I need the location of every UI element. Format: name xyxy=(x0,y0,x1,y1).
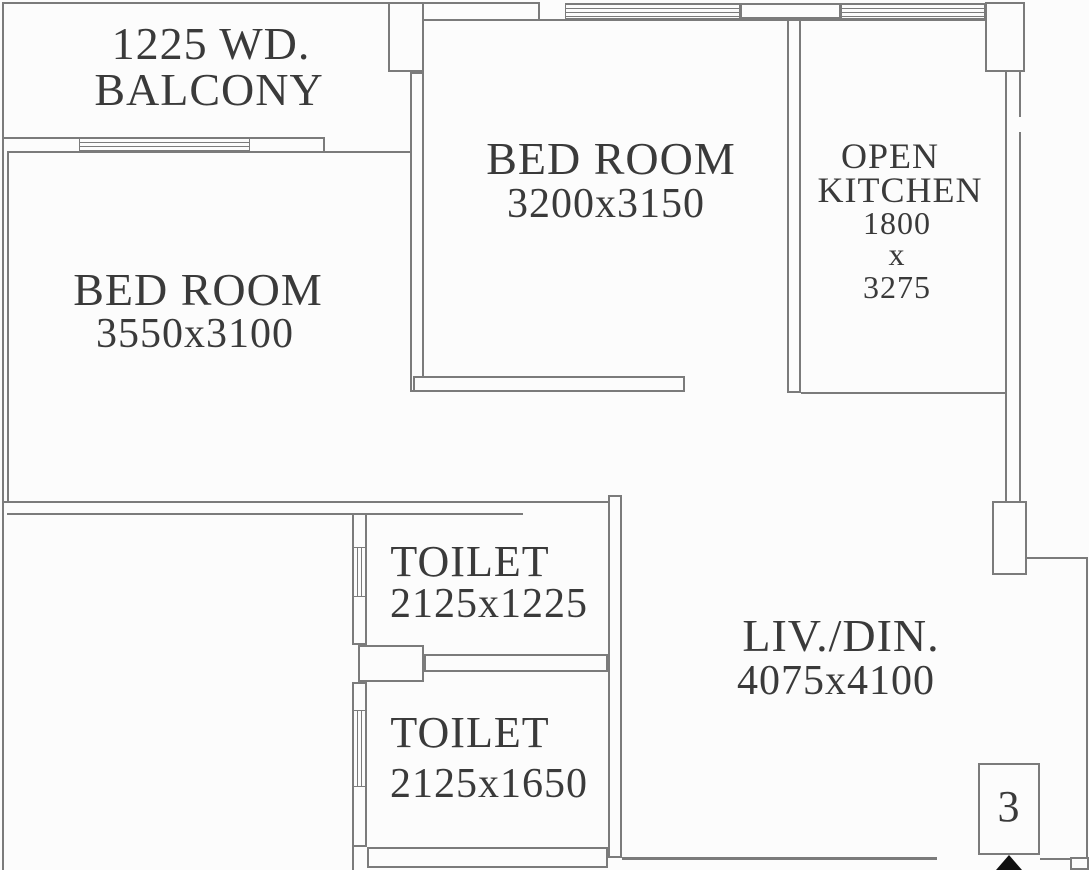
bedroom-1-name-label: BED ROOM xyxy=(73,267,323,313)
kitchen-dimension-x: x xyxy=(889,238,906,270)
unit-number-label: 3 xyxy=(998,785,1021,829)
wall-band-between-windows xyxy=(740,3,841,19)
wall-top-outer xyxy=(2,2,538,4)
wall-bed2-right xyxy=(787,19,801,393)
wall-livdin-bottom xyxy=(622,857,937,860)
floor-plan: 1225 WD. BALCONY BED ROOM 3550x3100 BED … xyxy=(0,0,1089,870)
wall-block-bottom-right xyxy=(1070,857,1089,870)
wall-toilets-right xyxy=(608,495,622,858)
wall-kitchen-bottom xyxy=(801,392,1007,394)
living-dining-name-label: LIV./DIN. xyxy=(742,613,939,659)
kitchen-dimension-depth: 3275 xyxy=(863,271,931,303)
entrance-arrow-icon xyxy=(996,855,1022,870)
bedroom-2-dimension-label: 3200x3150 xyxy=(507,183,705,225)
kitchen-name-label-1: OPEN xyxy=(841,138,939,174)
wall-right-outer xyxy=(1086,557,1088,859)
wall-bed1-bed2-shared xyxy=(410,72,424,392)
wall-balcony-bottom-tick xyxy=(323,137,325,152)
toilet-1-name-label: TOILET xyxy=(390,540,549,584)
bedroom-2-name-label: BED ROOM xyxy=(486,136,736,182)
wall-toilets-divider xyxy=(424,654,608,672)
bedroom-2-window xyxy=(565,3,740,19)
balcony-name-label: BALCONY xyxy=(94,67,323,113)
toilet-1-dimension-label: 2125x1225 xyxy=(390,583,588,625)
balcony-dimension-label: 1225 WD. xyxy=(112,21,311,67)
toilet-2-dimension-label: 2125x1650 xyxy=(390,763,588,805)
wall-balcony-bottom-right xyxy=(250,137,323,139)
wall-bed1-left-inner xyxy=(7,151,9,502)
wall-bed1-bottom-outer xyxy=(2,501,608,503)
wall-block-top-right xyxy=(985,2,1025,72)
wall-bed2-bottom xyxy=(413,376,685,392)
wall-kitchen-right-outer-lower xyxy=(1019,132,1021,501)
kitchen-dimension-width: 1800 xyxy=(863,207,931,239)
wall-shaft-bottom-stub xyxy=(352,847,354,870)
wall-top-tick xyxy=(538,2,540,20)
toilet-2-vent-window xyxy=(352,710,367,787)
bedroom-1-dimension-label: 3550x3100 xyxy=(96,313,294,355)
wall-kitchen-right-inner xyxy=(1005,72,1007,501)
wall-bed1-bottom-inner xyxy=(7,513,523,515)
living-dining-dimension-label: 4075x4100 xyxy=(737,660,935,702)
kitchen-name-label-2: KITCHEN xyxy=(818,172,983,208)
toilet-door-leaf xyxy=(358,645,424,682)
kitchen-window xyxy=(841,3,985,19)
wall-balcony-bottom-left xyxy=(2,137,79,139)
wall-toilet2-bottom xyxy=(367,847,608,868)
wall-block-mid-right xyxy=(992,501,1027,575)
wall-bed2-kitchen-top xyxy=(424,19,992,21)
wall-kitchen-right-outer-upper xyxy=(1019,72,1021,117)
wall-right-ledge xyxy=(1027,557,1086,559)
wall-block-balcony-right xyxy=(388,2,424,72)
balcony-window xyxy=(79,137,250,152)
toilet-1-vent-window xyxy=(352,547,367,597)
wall-left-outer xyxy=(2,2,4,870)
toilet-2-name-label: TOILET xyxy=(390,711,549,755)
